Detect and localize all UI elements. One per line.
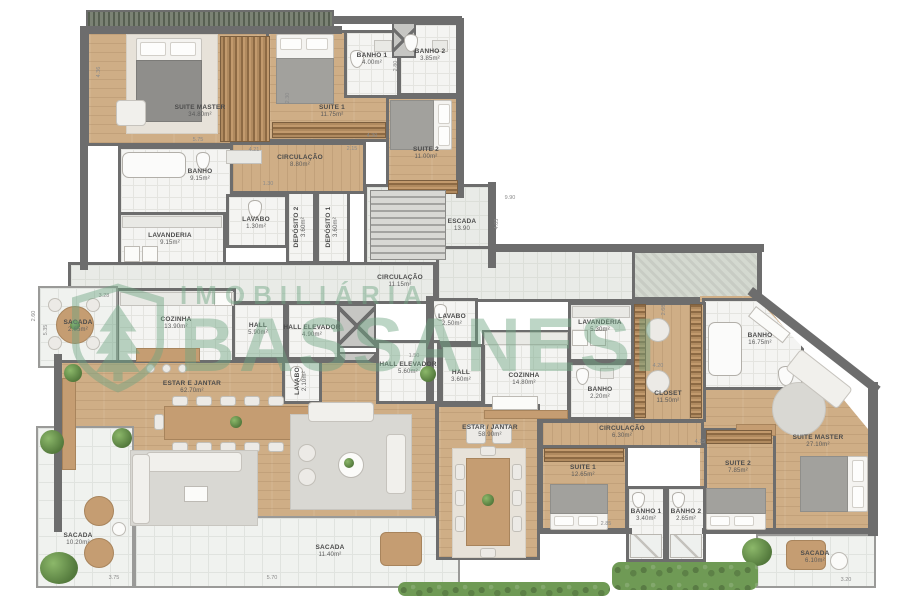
dimension-label: 2.15 (347, 146, 358, 152)
label-cozinha-a: COZINHA13.90m² (160, 316, 191, 332)
label-suite-master-a: SUITE MASTER34.80m² (175, 104, 226, 120)
room-name: BANHO 1 (357, 52, 388, 59)
sofa (132, 454, 150, 524)
room-name: SACADA (800, 550, 829, 557)
room-area: 7.85m² (725, 468, 751, 476)
room-name: SACADA (63, 532, 92, 539)
label-escada: ESCADA13.90 (448, 218, 477, 234)
chair (172, 396, 188, 406)
label-lavanderia-b: LAVANDERIA5.30m² (578, 319, 622, 335)
room-area: 4.90m² (283, 332, 340, 340)
dimension-label: 1.30 (263, 181, 274, 187)
room-area: 3.40m² (631, 516, 662, 524)
room-name: CIRCULAÇÃO (599, 425, 645, 432)
room-area: 9.15m² (188, 176, 213, 184)
wardrobe (634, 304, 646, 418)
room-name: COZINHA (508, 372, 539, 379)
label-circulacao-a: CIRCULAÇÃO8.80m² (277, 154, 323, 170)
plant (230, 416, 242, 428)
chair (512, 464, 522, 480)
wall (456, 18, 464, 198)
label-hall-elevador-a: HALL ELEVADOR4.90m² (283, 324, 340, 340)
pillow (734, 516, 754, 526)
sink (600, 368, 614, 379)
room-name: CLOSET (654, 390, 682, 397)
room-name: CIRCULAÇÃO (377, 274, 423, 281)
label-suite-master-b: SUITE MASTER27.10m² (793, 434, 844, 450)
wardrobe (544, 448, 624, 462)
room-name: SUITE 2 (413, 146, 439, 153)
room-area: 9.15m² (148, 240, 192, 248)
room-area: 14.80m² (508, 380, 539, 388)
elevator-shaft-1 (338, 304, 376, 348)
label-banho-master-b: BANHO16.75m² (748, 332, 773, 348)
pillow (554, 516, 574, 526)
dimension-label: 4.20 (653, 363, 664, 369)
room-name: HALL ELEVADOR (283, 324, 340, 331)
label-banho2-b: BANHO 22.65m² (671, 508, 702, 524)
pillow (438, 104, 450, 124)
room-name: HALL (452, 369, 470, 376)
dimension-label: 4.30 (367, 133, 378, 139)
room-name: DEPÓSITO 1 (325, 207, 332, 248)
room-area: 3.60m² (451, 377, 471, 385)
pillow (578, 516, 598, 526)
chair (480, 548, 496, 558)
label-banho1-a: BANHO 14.00m² (357, 52, 388, 68)
coffee-table (184, 486, 208, 502)
room-area: 13.90m² (160, 324, 191, 332)
hedge (612, 562, 758, 590)
washer (142, 246, 158, 262)
room-name: HALL ELEVADOR (379, 361, 436, 368)
plant (482, 494, 494, 506)
label-lavabo-a: LAVABO1.30m² (242, 216, 270, 232)
tv-console (62, 378, 76, 470)
pillow (140, 42, 166, 56)
room-area: 3.60m² (333, 207, 341, 248)
label-suite1-b: SUITE 112.65m² (570, 464, 596, 480)
room-name: BANHO (188, 168, 213, 175)
bed-blanket (800, 456, 848, 512)
label-circulacao-main: CIRCULAÇÃO11.15m² (377, 274, 423, 290)
dimension-label: 4.21 (249, 147, 260, 153)
room-name: CIRCULAÇÃO (277, 154, 323, 161)
dimension-label: 2.30 (285, 93, 291, 104)
chair (268, 396, 284, 406)
room-name: DEPÓSITO 2 (293, 207, 300, 248)
bed-blanket (706, 488, 766, 514)
stool (162, 364, 171, 373)
chair (512, 516, 522, 532)
stair-treads (370, 190, 446, 260)
plant (112, 428, 132, 448)
room-name: SACADA (315, 544, 344, 551)
dimension-label: 9.90 (505, 195, 516, 201)
label-sacada-a2: SACADA11.40m² (315, 544, 344, 560)
lounge-chair (380, 532, 422, 566)
room-name: SUITE MASTER (175, 104, 226, 111)
room-area: 11.00m² (413, 154, 439, 162)
room-area: 2.65m² (671, 516, 702, 524)
room-area: 2.65m² (63, 327, 92, 335)
chair (455, 516, 465, 532)
bathtub (122, 152, 186, 178)
room-area: 16.75m² (748, 340, 773, 348)
dimension-label: 3.20 (841, 577, 852, 583)
label-suite2-a: SUITE 211.00m² (413, 146, 439, 162)
chair (154, 414, 164, 430)
label-hall-elevador-b: HALL ELEVADOR5.60m² (379, 361, 436, 377)
label-estar-b: ESTAR / JANTAR58.90m² (462, 424, 518, 440)
armchair (298, 468, 316, 486)
label-lavabo-b: LAVABO2.50m² (438, 313, 466, 329)
dimension-label: 4.03 (494, 219, 500, 230)
room-name: ESTAR E JANTAR (163, 380, 221, 387)
room-name: BANHO (748, 332, 773, 339)
dimension-label: 4.15 (695, 439, 706, 445)
plant (64, 364, 82, 382)
chair (86, 298, 100, 312)
room-area: 2.50m² (438, 321, 466, 329)
room-area: 27.10m² (793, 442, 844, 450)
dimension-label: 5.35 (43, 325, 49, 336)
room-name: COZINHA (160, 316, 191, 323)
chair (480, 446, 496, 456)
chair (86, 336, 100, 350)
room-name: BANHO 2 (415, 48, 446, 55)
chair (455, 490, 465, 506)
shower (630, 534, 662, 558)
room-name: LAVABO (242, 216, 270, 223)
stool (146, 364, 155, 373)
dimension-label: 2.85 (601, 521, 612, 527)
plant (344, 458, 354, 468)
laundry-counter (572, 306, 630, 318)
fridge (214, 292, 232, 306)
chair (220, 396, 236, 406)
dimension-label: 5.70 (267, 575, 278, 581)
label-deposito1: DEPÓSITO 13.60m² (325, 207, 341, 248)
label-banho-a: BANHO9.15m² (188, 168, 213, 184)
room-name: LAVABO (438, 313, 466, 320)
service-area-b (632, 250, 760, 300)
label-closet-b: CLOSET11.50m² (654, 390, 682, 406)
pillow (280, 38, 302, 50)
room-name: LAVANDERIA (148, 232, 192, 239)
room-area: 5.60m² (379, 369, 436, 377)
label-suite2-b: SUITE 27.85m² (725, 460, 751, 476)
pillow (170, 42, 196, 56)
dimension-label: 4.36 (96, 67, 102, 78)
dimension-label: 3.75 (109, 575, 120, 581)
room-name: BANHO 1 (631, 508, 662, 515)
sink (374, 40, 392, 52)
hedge (398, 582, 610, 596)
pillow (852, 486, 864, 508)
room-area: 11.75m² (319, 112, 345, 120)
label-sacada-a1: SACADA10.20m² (63, 532, 92, 548)
room-area: 1.30m² (242, 224, 270, 232)
dimension-label: 3.28 (99, 293, 110, 299)
room-name: SUITE 2 (725, 460, 751, 467)
sofa (146, 452, 242, 472)
stool (178, 364, 187, 373)
label-sacada-b: SACADA6.10m² (800, 550, 829, 566)
shower (670, 534, 702, 558)
plant (40, 430, 64, 454)
room-area: 4.00m² (357, 60, 388, 68)
room-area: 34.80m² (175, 112, 226, 120)
wall (426, 296, 434, 404)
room-area: 8.80m² (277, 162, 323, 170)
room-area: 2.20m² (588, 394, 613, 402)
armchair (116, 100, 146, 126)
room-area: 3.85m² (415, 56, 446, 64)
chair (455, 464, 465, 480)
chair (196, 396, 212, 406)
washer (124, 246, 140, 262)
dimension-label: 2.60 (31, 311, 37, 322)
room-area: 58.90m² (462, 432, 518, 440)
sofa (308, 402, 374, 422)
room-area: 62.70m² (163, 388, 221, 396)
side-table (112, 522, 126, 536)
laundry-counter (122, 216, 222, 228)
pouf (646, 318, 670, 342)
chair (48, 298, 62, 312)
wardrobe (706, 430, 772, 444)
label-lavanderia-a: LAVANDERIA9.15m² (148, 232, 192, 248)
room-area: 5.90m² (248, 330, 268, 338)
label-lavabo-a2: LAVABO2.10m² (294, 367, 310, 395)
room-area: 11.15m² (377, 282, 423, 290)
chair (48, 336, 62, 350)
sideboard (484, 410, 568, 419)
room-name: BANHO 2 (671, 508, 702, 515)
room-name: SUITE 1 (319, 104, 345, 111)
room-area: 6.30m² (599, 433, 645, 441)
label-banho1-b: BANHO 13.40m² (631, 508, 662, 524)
chair (512, 490, 522, 506)
room-area: 3.60m² (301, 207, 309, 248)
label-cozinha-b: COZINHA14.80m² (508, 372, 539, 388)
bed-blanket (550, 484, 608, 514)
floor-plan: SUITE MASTER34.80m² SUITE 111.75m² BANHO… (0, 0, 900, 600)
pillow (852, 460, 864, 482)
wall (80, 26, 342, 34)
room-name: LAVANDERIA (578, 319, 622, 326)
wardrobe (220, 36, 270, 142)
room-name: SACADA (63, 319, 92, 326)
chair (244, 396, 260, 406)
room-name: ESCADA (448, 218, 477, 225)
room-area: 12.65m² (570, 472, 596, 480)
bathtub (708, 322, 742, 376)
room-name: SUITE MASTER (793, 434, 844, 441)
room-area: 5.30m² (578, 327, 622, 335)
rattan-chair (84, 496, 114, 526)
side-table (830, 552, 848, 570)
kitchen-counter (484, 332, 568, 345)
pillow (438, 126, 450, 146)
room-name: BANHO (588, 386, 613, 393)
room-area: 2.10m² (302, 367, 310, 395)
room-name: SUITE 1 (570, 464, 596, 471)
kitchen-island (492, 396, 538, 410)
pillow (306, 38, 328, 50)
armchair (298, 444, 316, 462)
dimension-label: 5.75 (193, 137, 204, 143)
sofa (386, 434, 406, 494)
room-area: 11.40m² (315, 552, 344, 560)
wall (80, 26, 88, 270)
wall (334, 16, 462, 24)
room-area: 11.50m² (654, 398, 682, 406)
label-hall-b: HALL3.60m² (451, 369, 471, 385)
room-area: 6.10m² (800, 558, 829, 566)
label-circulacao-b: CIRCULAÇÃO6.30m² (599, 425, 645, 441)
pillow (710, 516, 730, 526)
kitchen-island (136, 348, 200, 362)
dimension-label: 2.68 (661, 305, 667, 316)
bed-blanket (390, 100, 434, 150)
dimension-label: 2.80 (393, 61, 399, 72)
room-area: 13.90 (448, 226, 477, 234)
label-banho2-a: BANHO 23.85m² (415, 48, 446, 64)
chair (268, 442, 284, 452)
label-banho-b: BANHO2.20m² (588, 386, 613, 402)
plant (40, 552, 78, 584)
wall (868, 382, 878, 536)
label-deposito2: DEPÓSITO 23.60m² (293, 207, 309, 248)
label-sacada-esq: SACADA2.65m² (63, 319, 92, 335)
room-name: HALL (249, 322, 267, 329)
dimension-label: 1.50 (409, 353, 420, 359)
label-suite1-a: SUITE 111.75m² (319, 104, 345, 120)
wall (490, 244, 764, 252)
room-name: LAVABO (294, 367, 301, 395)
room-name: ESTAR / JANTAR (462, 424, 518, 431)
wardrobe (690, 304, 702, 418)
room-area: 10.20m² (63, 540, 92, 548)
label-hall-a: HALL5.90m² (248, 322, 268, 338)
label-estar-a: ESTAR E JANTAR62.70m² (163, 380, 221, 396)
